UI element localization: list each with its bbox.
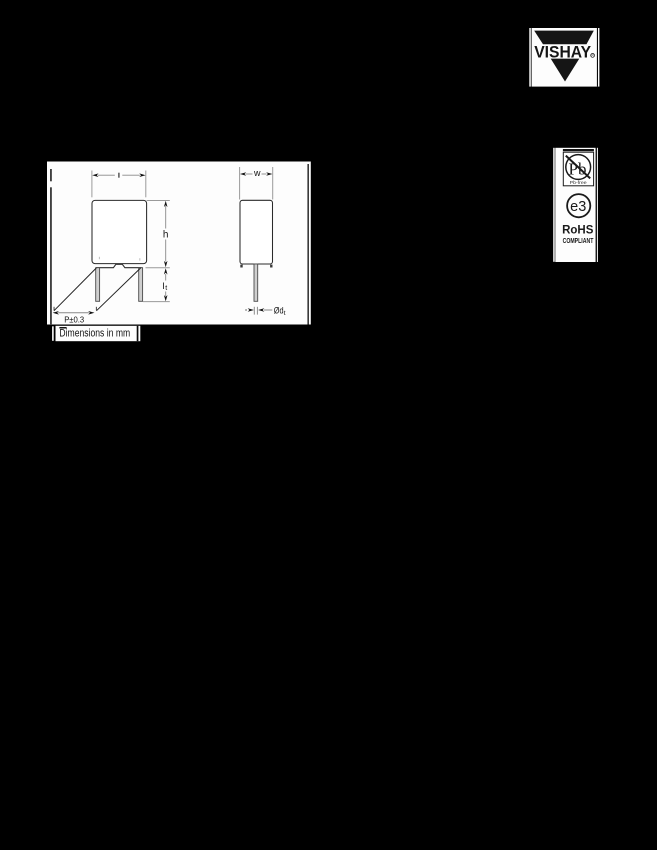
svg-text:e3: e3 [570, 199, 586, 215]
svg-text:h: h [163, 230, 169, 241]
svg-text:COMPLIANT: COMPLIANT [563, 236, 594, 245]
svg-text:P±0.3: P±0.3 [64, 314, 84, 324]
svg-text:RoHS: RoHS [562, 223, 593, 236]
svg-text:Dimensions in mm: Dimensions in mm [59, 328, 130, 340]
svg-text:t: t [284, 310, 286, 317]
svg-text:Ød: Ød [274, 305, 284, 315]
svg-text:w: w [253, 168, 261, 178]
svg-text:t: t [165, 285, 167, 292]
svg-text:Pb-free: Pb-free [570, 180, 588, 185]
svg-text:Pb: Pb [569, 160, 587, 179]
